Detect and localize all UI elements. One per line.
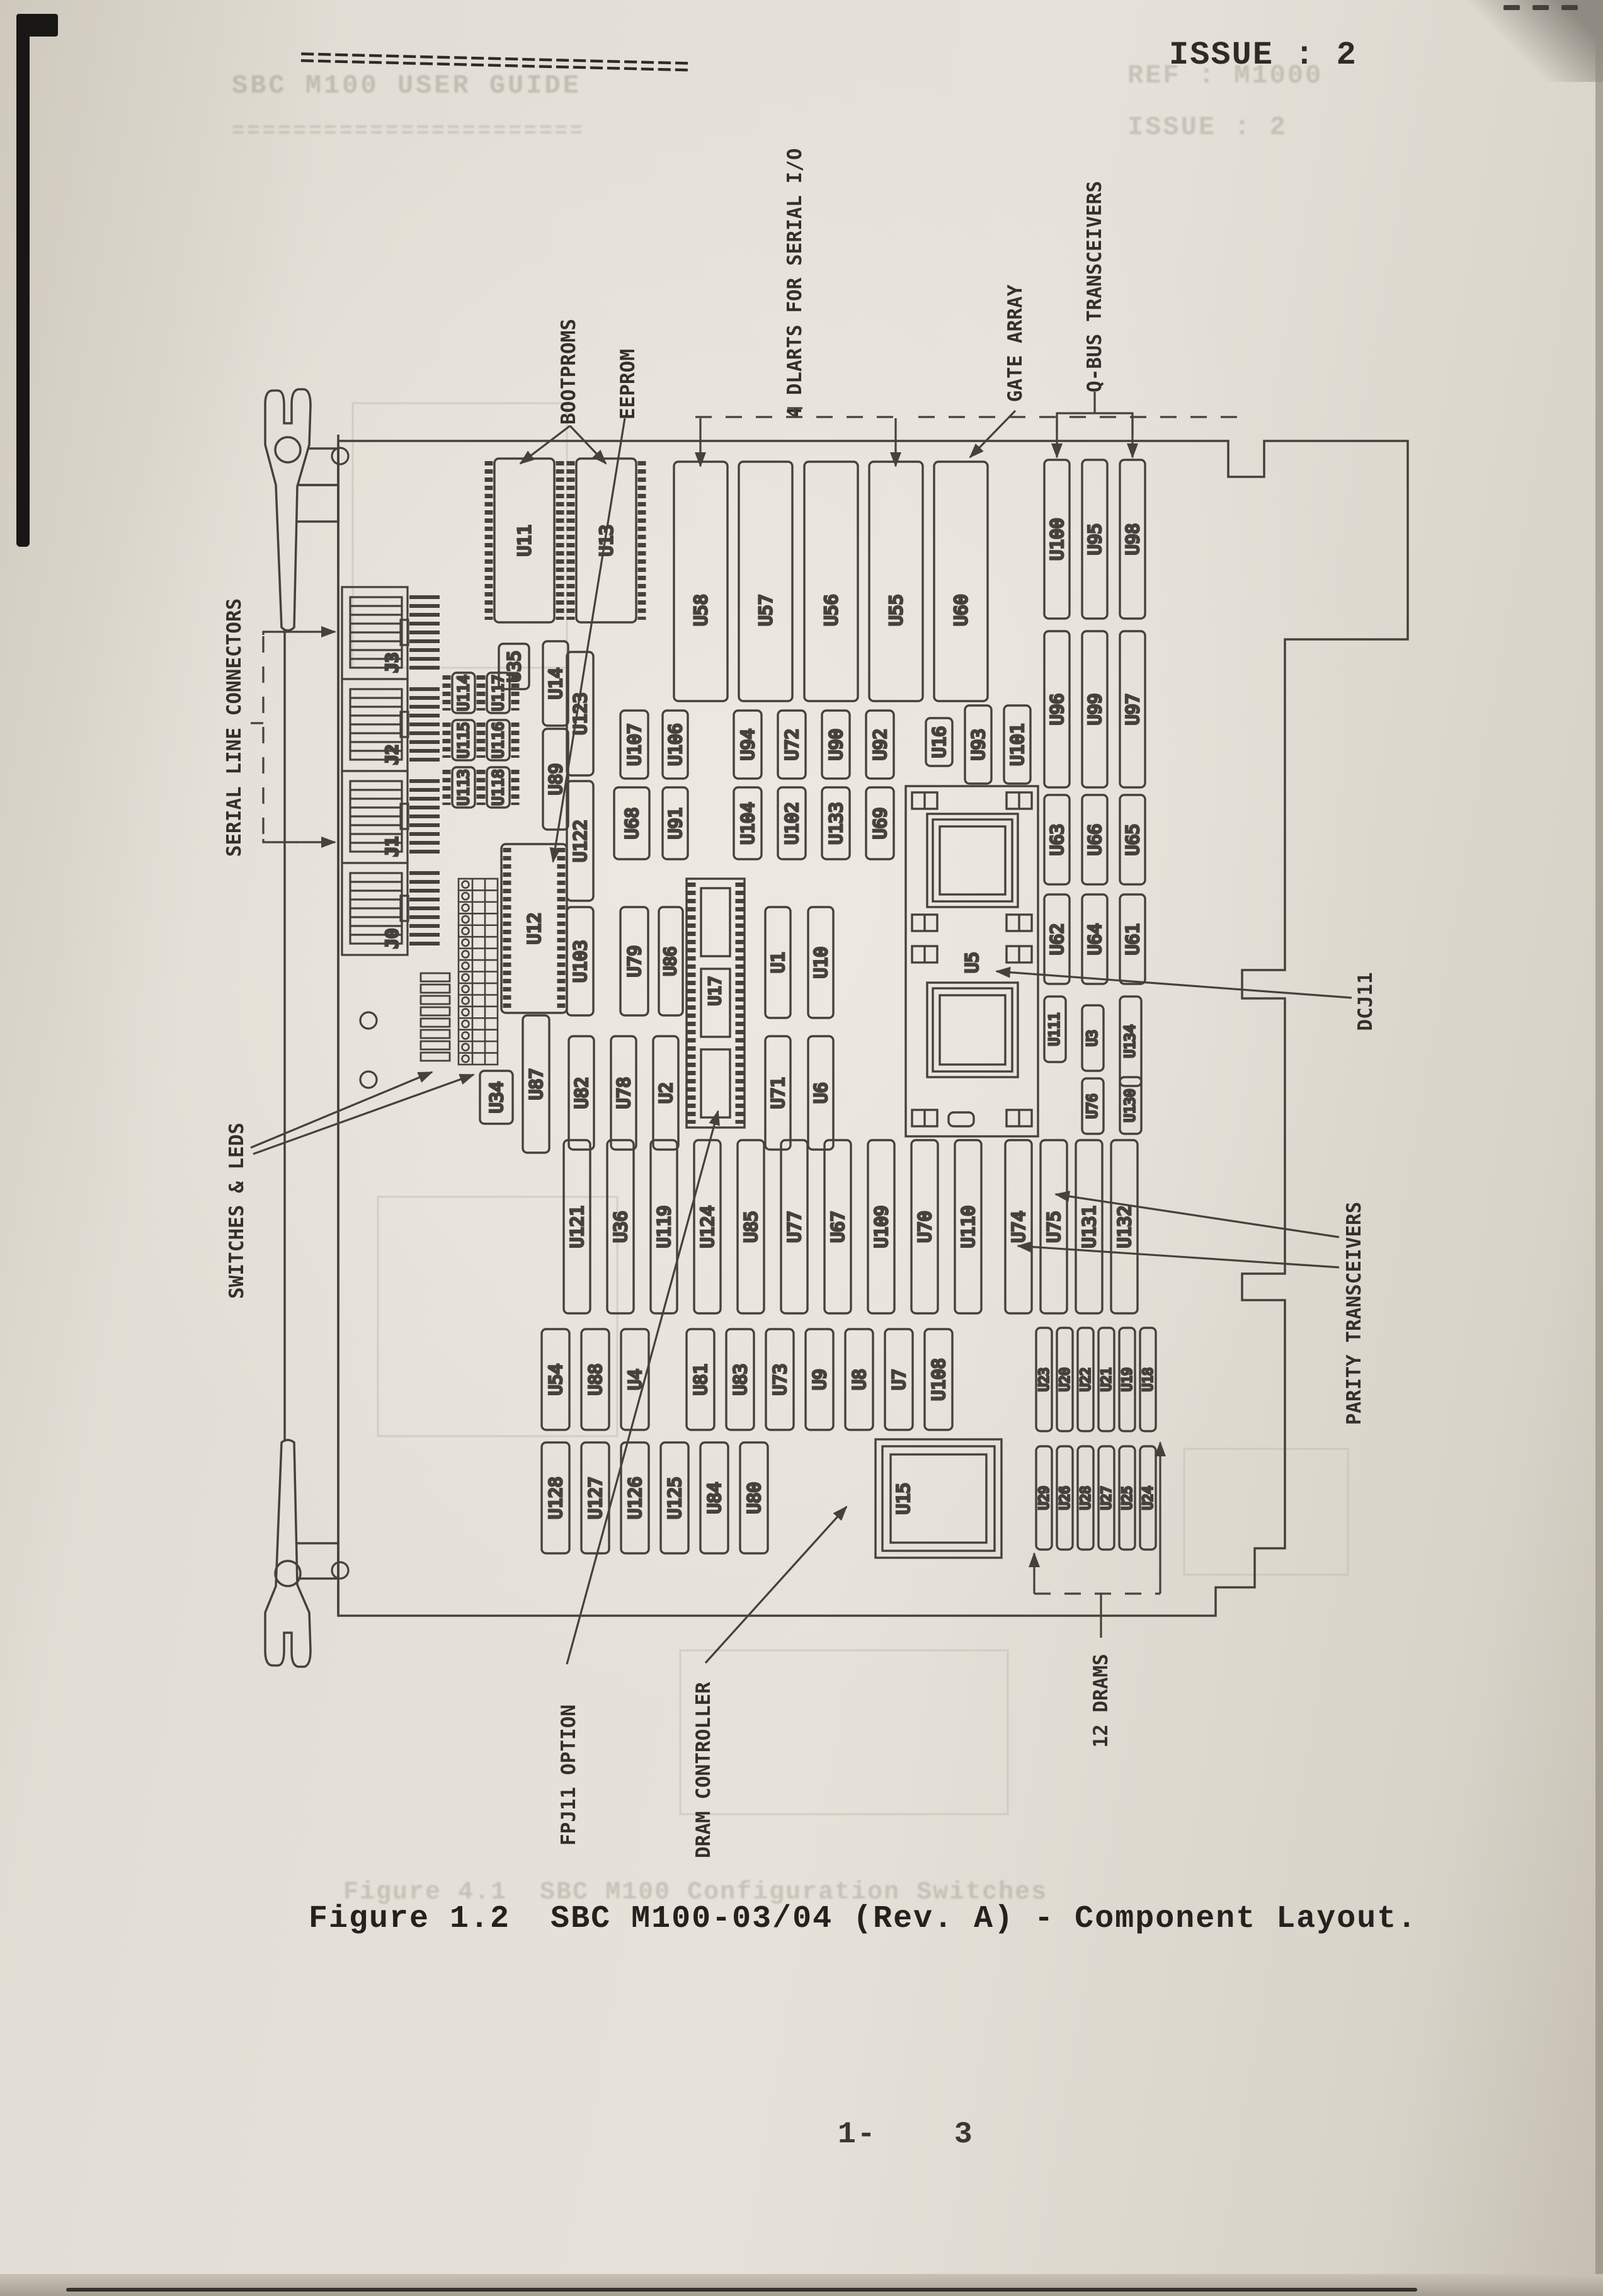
led-stack <box>421 973 450 1061</box>
chip-U89: U89 <box>543 729 568 830</box>
chip-label: U82 <box>571 1077 592 1109</box>
chip-label: U23 <box>1037 1368 1052 1391</box>
annotation-fpj11-option: FPJ11 OPTION <box>557 1705 580 1846</box>
chip-U8: U8 <box>845 1329 873 1430</box>
chip-label: U86 <box>661 947 680 976</box>
chip-label: U3 <box>1085 1030 1101 1047</box>
chip-U67: U67 <box>824 1140 851 1313</box>
chip-label: U26 <box>1058 1486 1073 1510</box>
chip-label: U57 <box>755 594 776 626</box>
chip-label: U114 <box>455 675 472 711</box>
annotation-bracket <box>1057 413 1132 433</box>
chip-label: U55 <box>886 594 906 626</box>
chip-label: U72 <box>782 729 802 761</box>
chip-U90: U90 <box>822 711 850 779</box>
chip-U75: U75 <box>1041 1140 1067 1313</box>
chip-U113: U113 <box>447 767 481 808</box>
chip-U29: U29 <box>1036 1446 1052 1550</box>
chip-label: U103 <box>570 940 591 982</box>
chip-U82: U82 <box>569 1036 594 1150</box>
chip-U3: U3 <box>1082 1005 1104 1071</box>
serial-connectors: J3J2J1J0 <box>332 448 440 1579</box>
chip-U15: U15 <box>876 1439 1001 1558</box>
chip-label: U71 <box>768 1077 789 1109</box>
chip-label: U34 <box>486 1082 507 1114</box>
chip-label: U99 <box>1085 694 1105 726</box>
annotation-gate-array: GATE ARRAY <box>1004 284 1027 402</box>
ejector-handle-bottom <box>265 1440 311 1667</box>
chip-label: U89 <box>545 763 566 796</box>
chip-label: U93 <box>968 729 989 761</box>
mounting-hole <box>360 1071 377 1088</box>
connector-label: J1 <box>383 837 402 857</box>
chip-label: U115 <box>455 722 472 758</box>
chip-U6: U6 <box>808 1036 833 1150</box>
annotation-dram-controller: DRAM CONTROLLER <box>692 1682 715 1858</box>
chip-U20: U20 <box>1057 1328 1073 1431</box>
chip-label: U9 <box>809 1369 830 1390</box>
chip-U36: U36 <box>607 1140 634 1313</box>
chip-label: U54 <box>545 1364 566 1396</box>
chip-U103: U103 <box>567 907 593 1015</box>
chip-U56: U56 <box>804 462 858 701</box>
chip-U26: U26 <box>1057 1446 1073 1550</box>
chip-label: U96 <box>1047 694 1068 726</box>
chip-U19: U19 <box>1119 1328 1135 1431</box>
chip-U70: U70 <box>911 1140 938 1313</box>
mounting-hole <box>332 1562 348 1579</box>
chip-label: U63 <box>1047 824 1068 856</box>
annotation-qbus-transceivers: Q-BUS TRANSCEIVERS <box>1083 181 1106 392</box>
chip-U54: U54 <box>542 1329 569 1430</box>
chip-label: U10 <box>811 947 831 979</box>
chip-U21: U21 <box>1098 1328 1114 1431</box>
chip-label: U118 <box>489 769 507 806</box>
chip-U97: U97 <box>1120 631 1145 787</box>
annotation-serial-line-connectors: SERIAL LINE CONNECTORS <box>223 598 246 857</box>
chip-U10: U10 <box>808 907 833 1018</box>
chip-U7: U7 <box>885 1329 913 1430</box>
chip-label: U14 <box>545 668 566 700</box>
chip-label: U73 <box>770 1364 790 1396</box>
connector-J0: J0 <box>342 863 440 955</box>
annotation-dcj11: DCJ11 <box>1354 972 1377 1031</box>
annotation-arrow <box>251 1072 432 1148</box>
chip-label: U22 <box>1078 1368 1093 1391</box>
chip-label: U17 <box>706 976 725 1006</box>
chip-U84: U84 <box>700 1442 728 1553</box>
mounting-hole <box>360 1012 377 1029</box>
chip-U127: U127 <box>581 1442 609 1553</box>
chip-U116: U116 <box>481 720 515 760</box>
chip-label: U111 <box>1047 1013 1063 1046</box>
chip-label: U87 <box>526 1068 547 1100</box>
chip-U27: U27 <box>1098 1446 1114 1550</box>
connector-J2: J2 <box>342 679 440 771</box>
chip-label: U109 <box>871 1206 892 1248</box>
component-layout-diagram: J3J2J1J0 U11U13U58U57U56U55U60U100U95U98… <box>0 0 1603 2296</box>
chip-label: U75 <box>1044 1211 1064 1243</box>
chip-label: U119 <box>654 1206 675 1248</box>
annotation-bracket <box>263 632 297 635</box>
chip-U131: U131 <box>1076 1140 1102 1313</box>
chip-label: U21 <box>1099 1368 1114 1391</box>
annotation-arrow <box>705 1507 847 1663</box>
chip-U128: U128 <box>542 1442 569 1553</box>
chip-U2: U2 <box>653 1036 678 1150</box>
connector-label: J3 <box>383 653 402 673</box>
chip-U34: U34 <box>480 1071 513 1124</box>
chip-U106: U106 <box>663 711 688 779</box>
chip-U14: U14 <box>543 641 568 726</box>
chip-label: U1 <box>768 952 789 973</box>
chip-U91: U91 <box>663 787 688 859</box>
chip-label: U92 <box>870 729 891 761</box>
chip-U117: U117 <box>481 673 515 713</box>
chip-label: U125 <box>665 1476 685 1519</box>
annotation-eeprom: EEPROM <box>617 349 639 420</box>
ejector-handle-top <box>265 389 311 631</box>
chip-U124: U124 <box>694 1140 721 1313</box>
chip-U133: U133 <box>822 787 850 859</box>
chip-U114: U114 <box>447 673 481 713</box>
chip-label: U104 <box>738 802 758 844</box>
chip-U87: U87 <box>523 1015 549 1153</box>
chip-label: U61 <box>1122 923 1143 956</box>
chip-U73: U73 <box>766 1329 794 1430</box>
chip-U77: U77 <box>781 1140 807 1313</box>
chip-label: U100 <box>1047 518 1068 560</box>
chip-label: U5 <box>962 952 983 973</box>
chip-U13: U13 <box>571 459 642 622</box>
chip-U95: U95 <box>1082 460 1107 619</box>
chip-U83: U83 <box>726 1329 754 1430</box>
chip-label: U81 <box>690 1364 711 1396</box>
chip-U134: U134 <box>1120 997 1141 1086</box>
chip-U55: U55 <box>869 462 923 701</box>
chip-label: U18 <box>1141 1368 1156 1391</box>
annotation-bracket <box>263 839 297 842</box>
chip-U17: U17 <box>687 879 744 1128</box>
chip-U100: U100 <box>1044 460 1070 619</box>
chip-label: U62 <box>1047 923 1068 956</box>
chip-U102: U102 <box>778 787 806 859</box>
chip-U68: U68 <box>614 787 649 859</box>
chip-label: U70 <box>915 1211 935 1243</box>
chip-U99: U99 <box>1082 631 1107 787</box>
chips: U11U13U58U57U56U55U60U100U95U98U96U99U97… <box>447 459 1156 1558</box>
chip-U16: U16 <box>926 718 952 766</box>
chip-label: U88 <box>585 1364 606 1396</box>
chip-label: U94 <box>738 729 758 761</box>
chip-label: U122 <box>570 820 591 862</box>
annotation-12-drams: 12 DRAMS <box>1090 1653 1112 1747</box>
chip-label: U28 <box>1078 1486 1093 1510</box>
chip-U9: U9 <box>806 1329 833 1430</box>
chip-U125: U125 <box>661 1442 688 1553</box>
chip-U66: U66 <box>1082 795 1107 884</box>
chip-label: U90 <box>826 729 847 761</box>
chip-label: U84 <box>704 1482 725 1514</box>
chip-label: U131 <box>1079 1206 1100 1248</box>
chip-label: U95 <box>1085 523 1105 556</box>
chip-U79: U79 <box>620 907 648 1015</box>
chip-U96: U96 <box>1044 631 1070 787</box>
annotation-parity-transceivers: PARITY TRANSCEIVERS <box>1343 1202 1366 1425</box>
chip-label: U27 <box>1099 1486 1114 1510</box>
chip-label: U98 <box>1122 523 1143 556</box>
chip-label: U110 <box>958 1206 979 1248</box>
chip-U85: U85 <box>738 1140 764 1313</box>
chip-U18: U18 <box>1140 1328 1156 1431</box>
chip-U23: U23 <box>1036 1328 1052 1431</box>
chip-U63: U63 <box>1044 795 1070 884</box>
chip-label: U102 <box>782 802 802 844</box>
chip-label: U91 <box>665 808 686 840</box>
chip-label: U133 <box>826 802 847 844</box>
chip-U5: U5 <box>906 786 1038 1136</box>
chip-label: U12 <box>524 913 545 945</box>
chip-label: U85 <box>741 1211 762 1243</box>
chip-U92: U92 <box>866 711 894 779</box>
chip-label: U124 <box>697 1206 718 1248</box>
chip-label: U7 <box>889 1369 910 1390</box>
chip-U22: U22 <box>1078 1328 1093 1431</box>
chip-U28: U28 <box>1078 1446 1093 1550</box>
chip-U94: U94 <box>734 711 762 779</box>
chip-U93: U93 <box>965 705 991 784</box>
chip-U65: U65 <box>1120 795 1145 884</box>
chip-U132: U132 <box>1111 1140 1138 1313</box>
annotation-dlarts: 4 DLARTS FOR SERIAL I/O <box>784 148 806 418</box>
chip-U111: U111 <box>1044 997 1066 1062</box>
chip-label: U134 <box>1123 1025 1139 1058</box>
chip-U118: U118 <box>481 767 515 808</box>
page-number: 1- 3 <box>838 2118 974 2152</box>
connector-label: J0 <box>383 928 402 949</box>
chip-U71: U71 <box>765 1036 790 1150</box>
chip-label: U8 <box>849 1369 870 1390</box>
scanned-page: ======================= ISSUE : 2 SBC M1… <box>0 0 1603 2296</box>
chip-label: U78 <box>613 1077 634 1109</box>
chip-label: U76 <box>1085 1094 1101 1119</box>
chip-label: U68 <box>622 808 642 840</box>
chip-U86: U86 <box>659 907 683 1015</box>
chip-U57: U57 <box>739 462 792 701</box>
chip-label: U97 <box>1122 694 1143 726</box>
chip-U24: U24 <box>1140 1446 1156 1550</box>
chip-U11: U11 <box>489 459 560 622</box>
chip-U122: U122 <box>567 781 593 901</box>
chip-label: U106 <box>665 723 686 765</box>
chip-U78: U78 <box>611 1036 636 1150</box>
chip-U72: U72 <box>778 711 806 779</box>
connector-label: J2 <box>383 745 402 765</box>
chip-U101: U101 <box>1004 705 1030 784</box>
chip-label: U117 <box>489 675 507 711</box>
chip-U76: U76 <box>1082 1078 1104 1134</box>
figure-caption: Figure 1.2 SBC M100-03/04 (Rev. A) - Com… <box>309 1901 1417 1937</box>
chip-label: U66 <box>1085 824 1105 856</box>
chip-U104: U104 <box>734 787 762 859</box>
connector-J3: J3 <box>342 587 440 679</box>
chip-label: U16 <box>929 726 950 758</box>
bleed-rect <box>1184 1449 1348 1575</box>
chip-label: U11 <box>514 525 535 557</box>
chip-U62: U62 <box>1044 894 1070 984</box>
chip-U1: U1 <box>765 907 790 1018</box>
chip-label: U64 <box>1085 923 1105 956</box>
chip-U126: U126 <box>621 1442 649 1553</box>
chip-U81: U81 <box>687 1329 714 1430</box>
bleed-rect <box>353 403 567 668</box>
chip-U119: U119 <box>651 1140 677 1313</box>
chip-label: U67 <box>828 1211 848 1243</box>
chip-U107: U107 <box>620 711 648 779</box>
chip-U121: U121 <box>564 1140 590 1313</box>
annotation-switches-leds: SWITCHES & LEDS <box>225 1122 248 1299</box>
chip-U110: U110 <box>955 1140 981 1313</box>
chip-label: U74 <box>1008 1211 1029 1243</box>
chip-U12: U12 <box>501 844 567 1013</box>
chip-label: U107 <box>624 723 645 765</box>
chip-label: U101 <box>1007 723 1028 765</box>
chip-label: U126 <box>625 1476 646 1519</box>
chip-label: U60 <box>950 594 971 626</box>
chip-label: U77 <box>784 1211 805 1243</box>
chip-label: U116 <box>489 722 507 758</box>
connector-J1: J1 <box>342 771 440 863</box>
chip-U108: U108 <box>925 1329 952 1430</box>
chip-U69: U69 <box>866 787 894 859</box>
dip-switch-block <box>459 879 498 1065</box>
chip-label: U36 <box>610 1211 631 1243</box>
chip-U80: U80 <box>740 1442 768 1553</box>
chip-U98: U98 <box>1120 460 1145 619</box>
chip-label: U58 <box>690 594 711 626</box>
chip-label: U6 <box>811 1082 831 1104</box>
chip-label: U19 <box>1120 1368 1135 1391</box>
chip-U61: U61 <box>1120 894 1145 984</box>
chip-label: U25 <box>1120 1486 1135 1510</box>
chip-U88: U88 <box>581 1329 609 1430</box>
chip-label: U108 <box>928 1358 949 1400</box>
chip-label: U121 <box>567 1206 588 1248</box>
chip-label: U83 <box>730 1364 751 1396</box>
chip-U74: U74 <box>1005 1140 1032 1313</box>
chip-U109: U109 <box>868 1140 894 1313</box>
chip-label: U29 <box>1037 1486 1052 1510</box>
chip-label: U69 <box>870 808 891 840</box>
bleed-rect <box>680 1650 1008 1814</box>
chip-U64: U64 <box>1082 894 1107 984</box>
chip-U58: U58 <box>674 462 727 701</box>
board-outline <box>338 441 1408 1616</box>
chip-U115: U115 <box>447 720 481 760</box>
mounting-hole <box>332 448 348 464</box>
chip-U25: U25 <box>1119 1446 1135 1550</box>
annotation-bootproms: BOOTPROMS <box>557 319 580 425</box>
chip-label: U79 <box>624 945 645 978</box>
chip-label: U2 <box>656 1082 676 1104</box>
chip-U60: U60 <box>934 462 988 701</box>
chip-label: U15 <box>893 1483 914 1515</box>
chip-label: U132 <box>1114 1206 1135 1248</box>
chip-label: U65 <box>1122 824 1143 856</box>
chip-label: U20 <box>1058 1368 1073 1391</box>
annotations: SERIAL LINE CONNECTORSSWITCHES & LEDSBOO… <box>223 148 1377 1858</box>
chip-label: U56 <box>821 594 841 626</box>
chip-label: U130 <box>1123 1089 1139 1122</box>
chip-label: U127 <box>585 1476 606 1519</box>
chip-label: U24 <box>1141 1486 1156 1510</box>
chip-label: U128 <box>545 1476 566 1519</box>
chip-label: U113 <box>455 769 472 806</box>
chip-label: U80 <box>744 1482 765 1514</box>
